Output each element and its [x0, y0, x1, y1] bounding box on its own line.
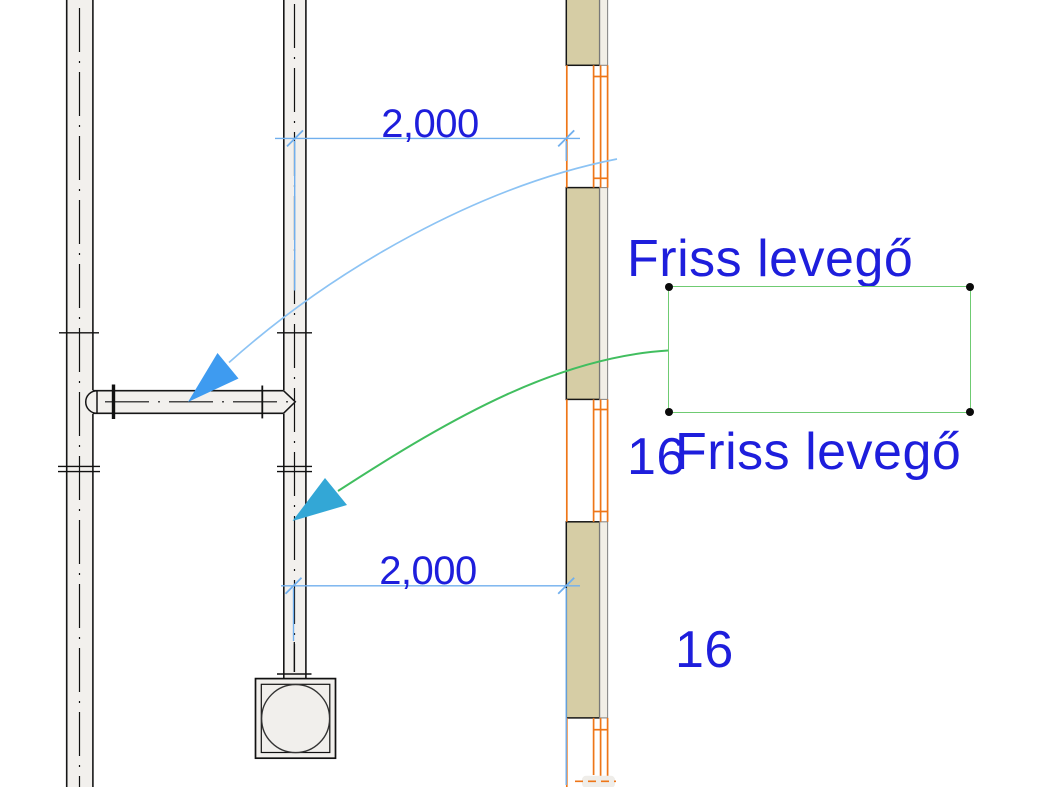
sill-body — [582, 776, 615, 787]
equipment-impeller-circle — [262, 685, 330, 753]
sill-element-bottom[interactable] — [575, 776, 616, 787]
duct-horizontal[interactable] — [86, 385, 296, 420]
leader-top[interactable] — [188, 159, 617, 402]
selection-handle[interactable] — [665, 283, 673, 291]
wall-segment — [566, 188, 599, 400]
wall-finish-layer — [600, 188, 608, 400]
wall-finish-layer — [600, 522, 608, 718]
wall-finish-layer — [600, 0, 608, 65]
selection-handle[interactable] — [966, 408, 974, 416]
dimension-text-top[interactable]: 2,000 — [330, 104, 530, 144]
duct-vertical-right[interactable] — [277, 0, 312, 679]
selection-handle[interactable] — [665, 408, 673, 416]
drawing-canvas[interactable]: Friss levegő 16 Friss levegő 16 2,000 2,… — [0, 0, 1040, 787]
dimension-top[interactable] — [275, 130, 580, 290]
window-2[interactable] — [567, 399, 608, 521]
wall-segment — [566, 522, 599, 718]
label-fresh-air-selected[interactable]: Friss levegő 16 — [668, 286, 971, 413]
leader-bottom[interactable] — [293, 351, 669, 522]
wall-segment — [566, 0, 599, 65]
dimension-text-bottom[interactable]: 2,000 — [328, 551, 528, 591]
label-line-1: Friss levegő — [627, 226, 913, 292]
selection-handle[interactable] — [966, 283, 974, 291]
leader-line — [338, 351, 668, 492]
label-line-1: Friss levegő — [675, 419, 970, 485]
label-line-2: 16 — [675, 617, 970, 683]
